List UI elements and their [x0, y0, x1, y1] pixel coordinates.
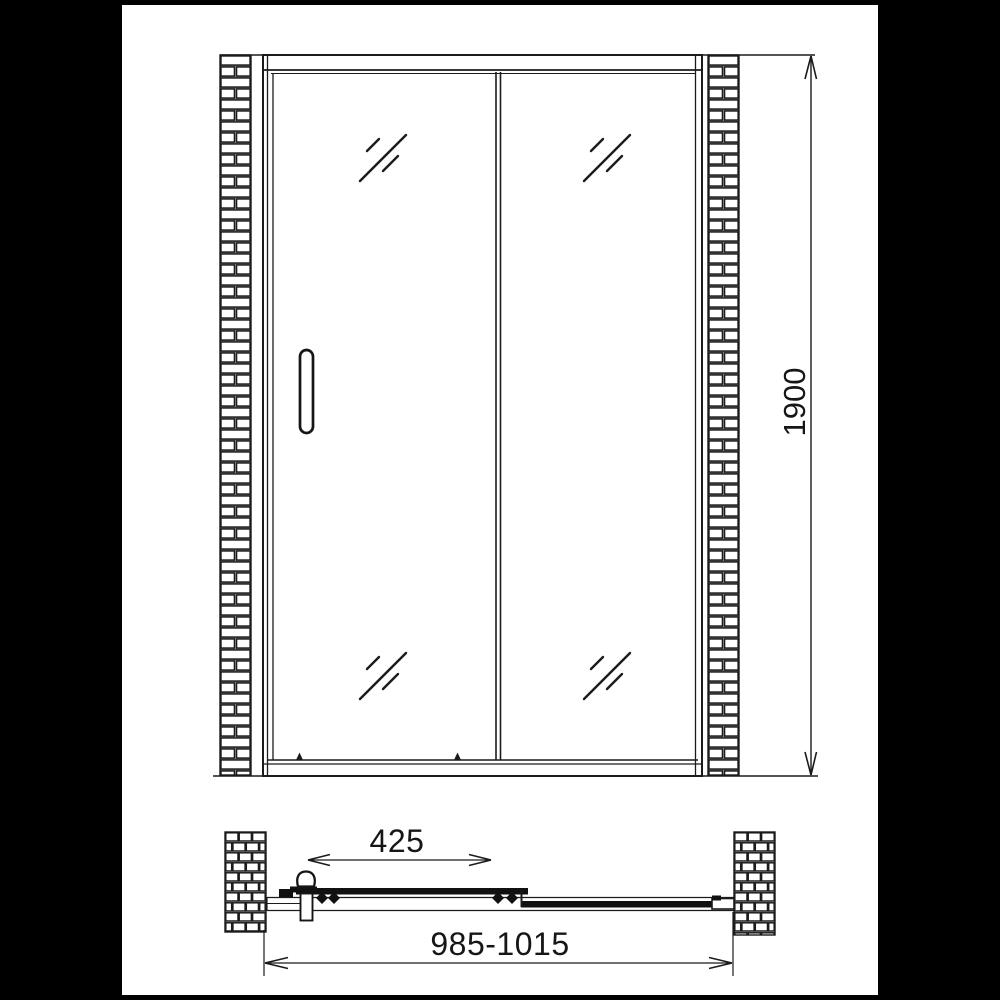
left-wall-column: [220, 55, 251, 775]
opening-dimension-label: 425: [370, 823, 425, 859]
plan-left-wall-column: [225, 832, 266, 932]
overall-width-dimension-label: 985-1015: [430, 926, 569, 962]
sliding-panel-plan: [296, 888, 528, 895]
knob-cap: [297, 872, 315, 887]
fixed-panel-plan: [521, 901, 714, 908]
right-wall-column: [708, 55, 739, 775]
height-dimension: 1900: [777, 56, 817, 775]
door-frame-outline: [263, 55, 702, 776]
opening-dimension: 425: [308, 823, 491, 866]
plan-right-wall-column: [734, 832, 775, 935]
height-dimension-label: 1900: [777, 368, 812, 437]
door-handle: [300, 350, 313, 433]
technical-drawing-canvas: 1900: [0, 0, 1000, 1000]
letterbox-top: [0, 0, 1000, 5]
drawing-svg: 1900: [0, 0, 1000, 1000]
overall-width-dimension: 985-1015: [264, 912, 733, 976]
fixed-panel-end-clip: [712, 896, 721, 901]
letterbox-left: [0, 0, 122, 1000]
plan-view: [225, 832, 775, 935]
front-elevation-view: [213, 55, 818, 776]
letterbox-bottom: [0, 995, 1000, 1000]
knob-stem: [301, 894, 313, 921]
letterbox-right: [878, 0, 1000, 1000]
